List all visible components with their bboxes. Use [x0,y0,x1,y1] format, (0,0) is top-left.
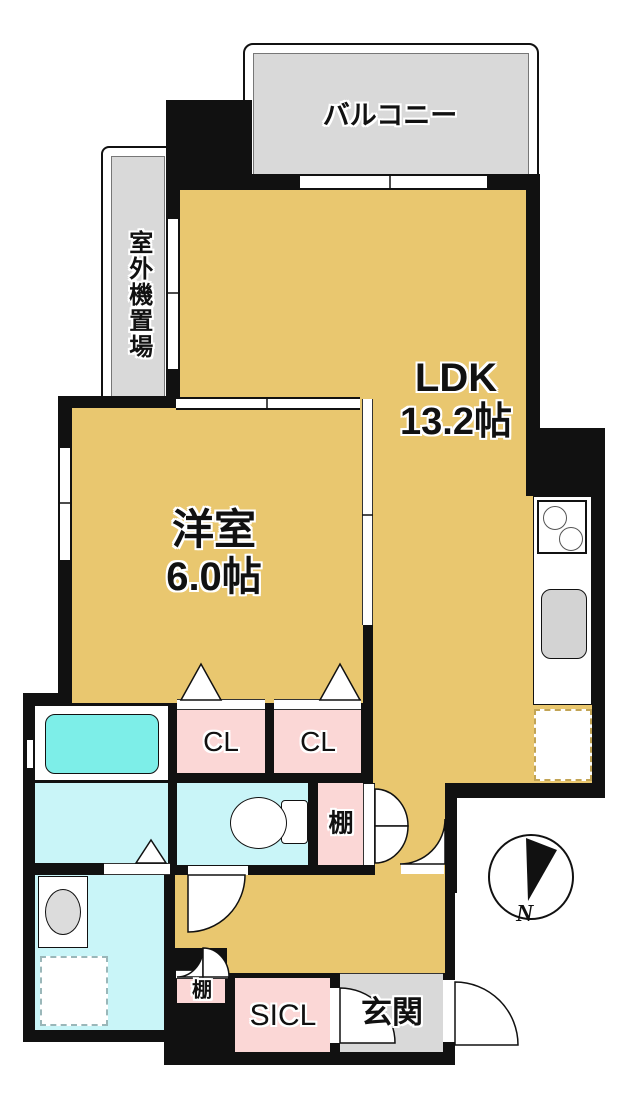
sicl-doorway [330,988,340,1043]
balcony-label: バルコニー [323,100,457,131]
entrance-label: 玄関 [361,995,423,1031]
hallway [227,948,445,973]
ldk-doorway [401,863,444,874]
kitchen-sink [541,589,587,659]
sicl-label: SICL [250,999,317,1034]
shelf-2-door [176,970,228,979]
western-room-label: 洋室 6.0帖 [166,506,262,600]
western-room-name: 洋室 [166,506,262,554]
front-doorway [443,980,455,1042]
closet-1-door [177,699,265,710]
stove-burner [559,527,583,551]
toilet-bowl [230,797,287,849]
wall-segment [445,783,605,798]
front-door-arc [455,982,518,1045]
toilet-doorway [188,866,248,875]
hallway [175,875,445,948]
closet-2-label: CL [300,726,336,758]
outdoor-unit-label: 室外機置場 [112,160,164,430]
compass-north-label: N [515,901,535,927]
floor-plan: N バルコニー 室外機置場 LDK 13.2帖 洋室 6.0帖 CL CL 棚 … [0,0,627,1109]
ldk-label: LDK 13.2帖 [400,355,512,445]
window-ldk-left [166,219,180,369]
wall-segment [164,1000,245,1060]
window-western-left [58,448,72,560]
ldk-size: 13.2帖 [400,401,512,445]
ldk-name: LDK [400,355,512,401]
window-western-top [176,397,360,410]
washer-space [40,956,108,1026]
hallway [375,783,445,875]
wash-basin [45,889,81,935]
compass-needle [526,838,557,901]
window-balcony [300,174,487,190]
washroom-upper [35,783,168,863]
closet-1-label: CL [203,726,239,758]
room-ldk [373,408,526,783]
stove-burner [543,506,567,530]
refrigerator-space [534,709,592,781]
compass-circle [489,835,573,919]
window-bathroom [25,740,35,768]
closet-2-door [274,699,361,710]
shelf-2-label: 棚 [192,980,212,1003]
washroom-folding-door [104,863,170,875]
partition-sliding-door [362,399,373,625]
western-room-size: 6.0帖 [166,554,262,600]
shelf-1-label: 棚 [328,810,353,839]
bathtub [45,714,159,774]
shelf-1-door [363,784,375,865]
